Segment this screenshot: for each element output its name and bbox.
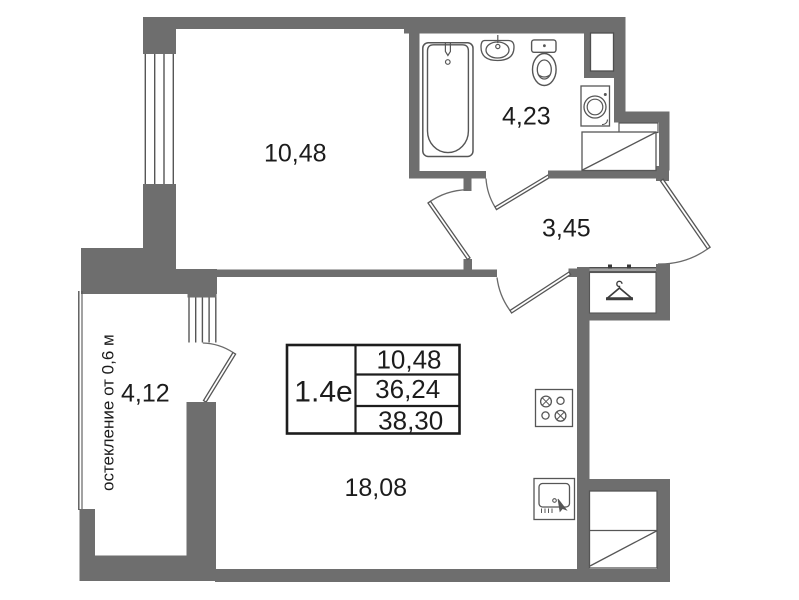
- svg-text:18,08: 18,08: [345, 474, 408, 502]
- svg-text:1.4е: 1.4е: [294, 376, 352, 409]
- svg-text:36,24: 36,24: [375, 374, 440, 404]
- svg-text:4,23: 4,23: [502, 103, 551, 131]
- svg-text:10,48: 10,48: [376, 344, 441, 374]
- svg-text:3,45: 3,45: [542, 215, 591, 243]
- svg-text:4,12: 4,12: [121, 380, 170, 408]
- svg-text:остекление от 0,6 м: остекление от 0,6 м: [99, 334, 118, 491]
- svg-text:38,30: 38,30: [378, 406, 443, 436]
- svg-text:10,48: 10,48: [264, 140, 327, 168]
